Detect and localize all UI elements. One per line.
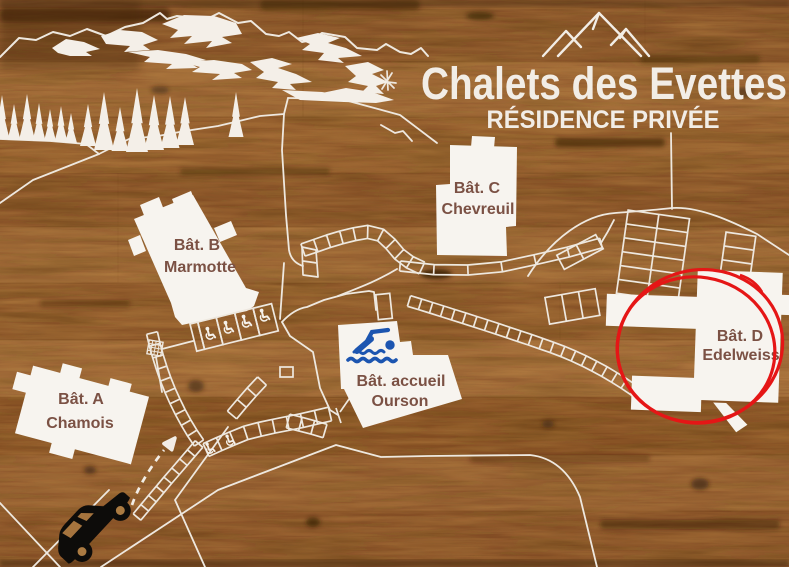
svg-text:RÉSIDENCE PRIVÉE: RÉSIDENCE PRIVÉE	[487, 105, 720, 134]
svg-text:Bât. B: Bât. B	[174, 237, 220, 254]
svg-text:Marmotte: Marmotte	[164, 259, 236, 276]
svg-text:Chalets des Evettes: Chalets des Evettes	[421, 58, 787, 109]
svg-text:Chevreuil: Chevreuil	[442, 201, 515, 218]
svg-text:Bât. A: Bât. A	[58, 391, 104, 408]
svg-text:Bât. D: Bât. D	[717, 328, 763, 345]
svg-text:Bât. accueil: Bât. accueil	[357, 373, 446, 390]
svg-text:Edelweiss: Edelweiss	[702, 347, 779, 364]
svg-text:Ourson: Ourson	[372, 393, 429, 410]
svg-text:Chamois: Chamois	[46, 415, 114, 432]
svg-text:Bât. C: Bât. C	[454, 180, 501, 197]
